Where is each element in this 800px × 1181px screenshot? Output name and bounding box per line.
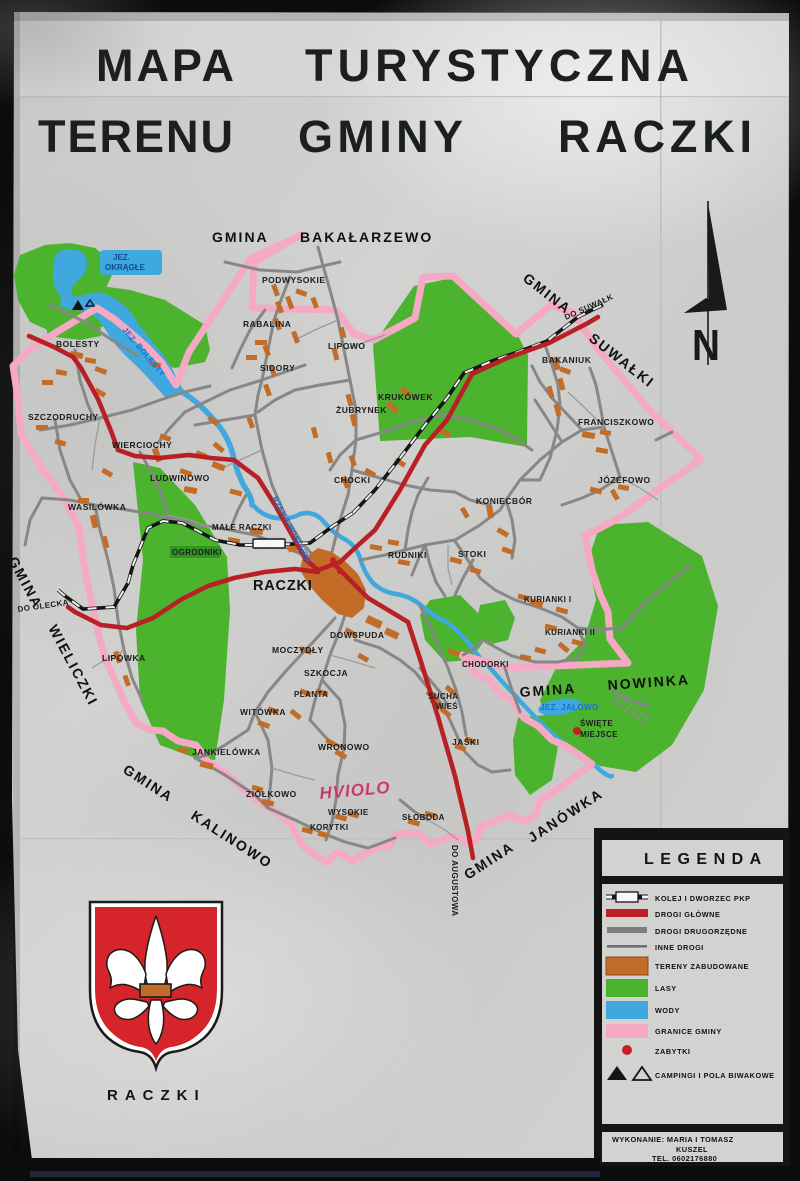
svg-text:GRANICE GMINY: GRANICE GMINY — [655, 1027, 722, 1036]
svg-text:SŁOBODA: SŁOBODA — [402, 813, 445, 822]
svg-text:MAŁE RACZKI: MAŁE RACZKI — [212, 523, 272, 532]
svg-text:DOWSPUDA: DOWSPUDA — [330, 630, 385, 640]
svg-text:RABALINA: RABALINA — [243, 319, 291, 329]
svg-text:WASILÓWKA: WASILÓWKA — [68, 501, 126, 512]
svg-text:JEZ.: JEZ. — [113, 253, 130, 262]
svg-text:KURIANKI I: KURIANKI I — [524, 595, 572, 604]
svg-text:KURIANKI II: KURIANKI II — [545, 628, 595, 637]
svg-text:DO AUGUSTOWA: DO AUGUSTOWA — [450, 845, 459, 916]
svg-text:KRUKÓWEK: KRUKÓWEK — [378, 391, 433, 402]
svg-text:MIEJSCE: MIEJSCE — [580, 730, 618, 739]
svg-text:SZKOCJA: SZKOCJA — [304, 668, 348, 678]
svg-text:DROGI DRUGORZĘDNE: DROGI DRUGORZĘDNE — [655, 927, 747, 936]
svg-text:BOLESTY: BOLESTY — [56, 339, 100, 349]
svg-text:BAKANIUK: BAKANIUK — [542, 355, 592, 365]
svg-text:STOKI: STOKI — [458, 549, 486, 559]
svg-text:PODWYSOKIE: PODWYSOKIE — [262, 275, 326, 285]
svg-text:WITÓWKA: WITÓWKA — [240, 706, 286, 717]
svg-text:ZIÓŁKOWO: ZIÓŁKOWO — [246, 788, 297, 799]
svg-text:WYSOKIE: WYSOKIE — [328, 808, 369, 817]
svg-text:DROGI GŁÓWNE: DROGI GŁÓWNE — [655, 910, 720, 919]
svg-text:KONIECBÓR: KONIECBÓR — [476, 495, 532, 506]
svg-text:JANKIELÓWKA: JANKIELÓWKA — [192, 746, 261, 757]
svg-text:MAPA: MAPA — [96, 40, 234, 91]
svg-text:INNE DROGI: INNE DROGI — [655, 943, 704, 952]
svg-text:WIERCIOCHY: WIERCIOCHY — [112, 440, 172, 450]
svg-text:RUDNIKI: RUDNIKI — [388, 550, 427, 560]
svg-text:ŻUBRYNEK: ŻUBRYNEK — [336, 405, 387, 415]
svg-text:WODY: WODY — [655, 1006, 680, 1015]
svg-text:JAŚKI: JAŚKI — [452, 736, 480, 747]
svg-text:WYKONANIE: MARIA I TO: WYKONANIE: MARIA I TOMASZ — [612, 1135, 734, 1144]
svg-text:RACZKI: RACZKI — [253, 578, 313, 594]
svg-text:BAKAŁARZEWO: BAKAŁARZEWO — [300, 229, 433, 245]
svg-text:ŚWIĘTE: ŚWIĘTE — [580, 719, 613, 728]
svg-text:TEL. 0602176880: TEL. 0602176880 — [652, 1154, 717, 1163]
svg-text:CAMPINGI I POLA BIWAKOWE: CAMPINGI I POLA BIWAKOWE — [655, 1071, 775, 1080]
svg-text:SIDORY: SIDORY — [260, 363, 295, 373]
svg-text:KUSZEL: KUSZEL — [676, 1145, 708, 1154]
svg-text:ZABYTKI: ZABYTKI — [655, 1047, 690, 1056]
svg-text:FRANCISZKOWO: FRANCISZKOWO — [578, 417, 654, 427]
svg-text:SZCZODRUCHY: SZCZODRUCHY — [28, 412, 99, 422]
svg-text:JEZ. JAŁOWO: JEZ. JAŁOWO — [540, 703, 599, 712]
svg-text:PLANTA: PLANTA — [294, 690, 328, 699]
svg-text:GMINA: GMINA — [212, 229, 269, 245]
svg-text:LIPOWO: LIPOWO — [328, 341, 365, 351]
svg-text:N: N — [692, 320, 720, 370]
svg-text:CHOCKI: CHOCKI — [334, 475, 371, 485]
svg-text:LEGENDA: LEGENDA — [644, 851, 768, 868]
svg-text:WRONOWO: WRONOWO — [318, 742, 370, 752]
svg-text:RACZKI: RACZKI — [558, 111, 752, 162]
svg-text:CHODORKI: CHODORKI — [462, 660, 509, 669]
svg-text:TERENU: TERENU — [38, 111, 233, 162]
svg-text:RACZKI: RACZKI — [107, 1087, 206, 1104]
svg-text:TERENY ZABUDOWANE: TERENY ZABUDOWANE — [655, 962, 749, 971]
svg-text:JÓZEFOWO: JÓZEFOWO — [598, 474, 651, 485]
svg-text:WIEŚ: WIEŚ — [436, 702, 458, 711]
svg-text:GMINY: GMINY — [298, 111, 463, 162]
svg-text:TURYSTYCZNA: TURYSTYCZNA — [305, 40, 689, 91]
svg-text:LASY: LASY — [655, 984, 677, 993]
svg-text:KOLEJ I DWORZEC PKP: KOLEJ I DWORZEC PKP — [655, 894, 751, 903]
svg-text:MOCZYDŁY: MOCZYDŁY — [272, 645, 324, 655]
svg-text:SUCHA: SUCHA — [428, 692, 458, 701]
svg-text:LIPÓWKA: LIPÓWKA — [102, 652, 146, 663]
svg-text:OGRODNIKI: OGRODNIKI — [172, 548, 222, 557]
svg-text:OKRĄGŁE: OKRĄGŁE — [105, 263, 146, 272]
svg-text:KORYTKI: KORYTKI — [310, 823, 349, 832]
svg-text:LUDWINOWO: LUDWINOWO — [150, 473, 210, 483]
